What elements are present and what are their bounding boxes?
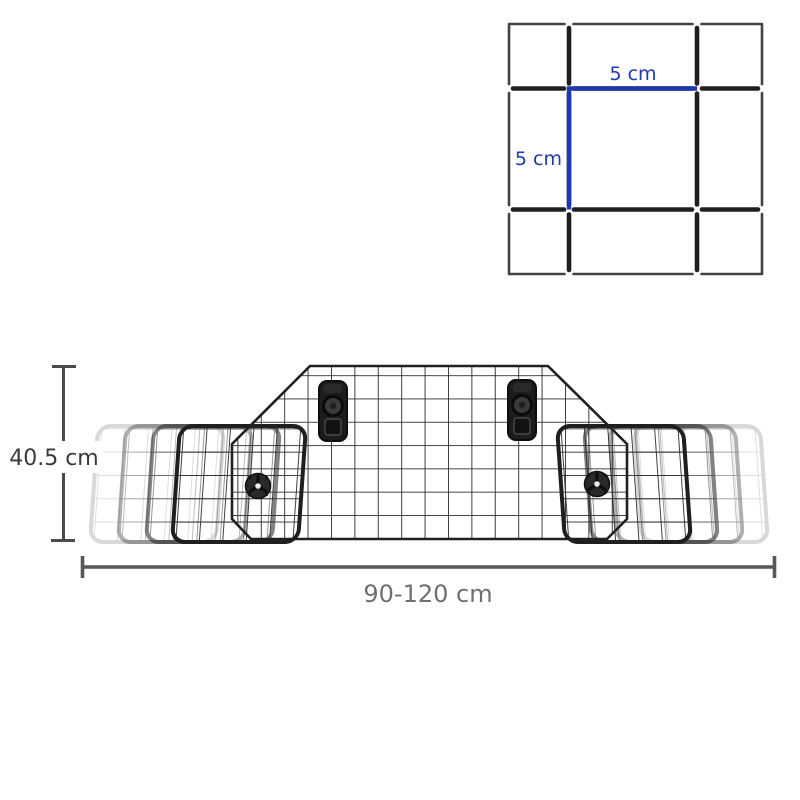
cell-height-label: 5 cm	[515, 148, 562, 170]
height-dimension: 40.5 cm	[6, 366, 104, 541]
headrest-clamp-right	[508, 380, 536, 440]
cell-width-label: 5 cm	[609, 63, 656, 85]
locking-knob-left	[246, 474, 271, 499]
cell-dimension-lines	[569, 89, 697, 210]
height-dimension-label: 40.5 cm	[9, 446, 99, 471]
width-dimension-label: 90-120 cm	[363, 580, 492, 608]
product-dimension-diagram: 5 cm 5 cm	[0, 0, 800, 800]
inset-cell-dimension: 5 cm 5 cm	[515, 63, 697, 210]
locking-knob-right	[585, 472, 610, 497]
barrier-illustration	[90, 366, 768, 542]
width-dimension: 90-120 cm	[82, 556, 775, 608]
extension-panel-right	[557, 426, 691, 542]
headrest-clamp-left	[319, 381, 347, 441]
mesh-detail-inset: 5 cm 5 cm	[509, 24, 762, 274]
width-dimension-line	[82, 556, 775, 578]
extension-panel-left	[172, 426, 306, 542]
